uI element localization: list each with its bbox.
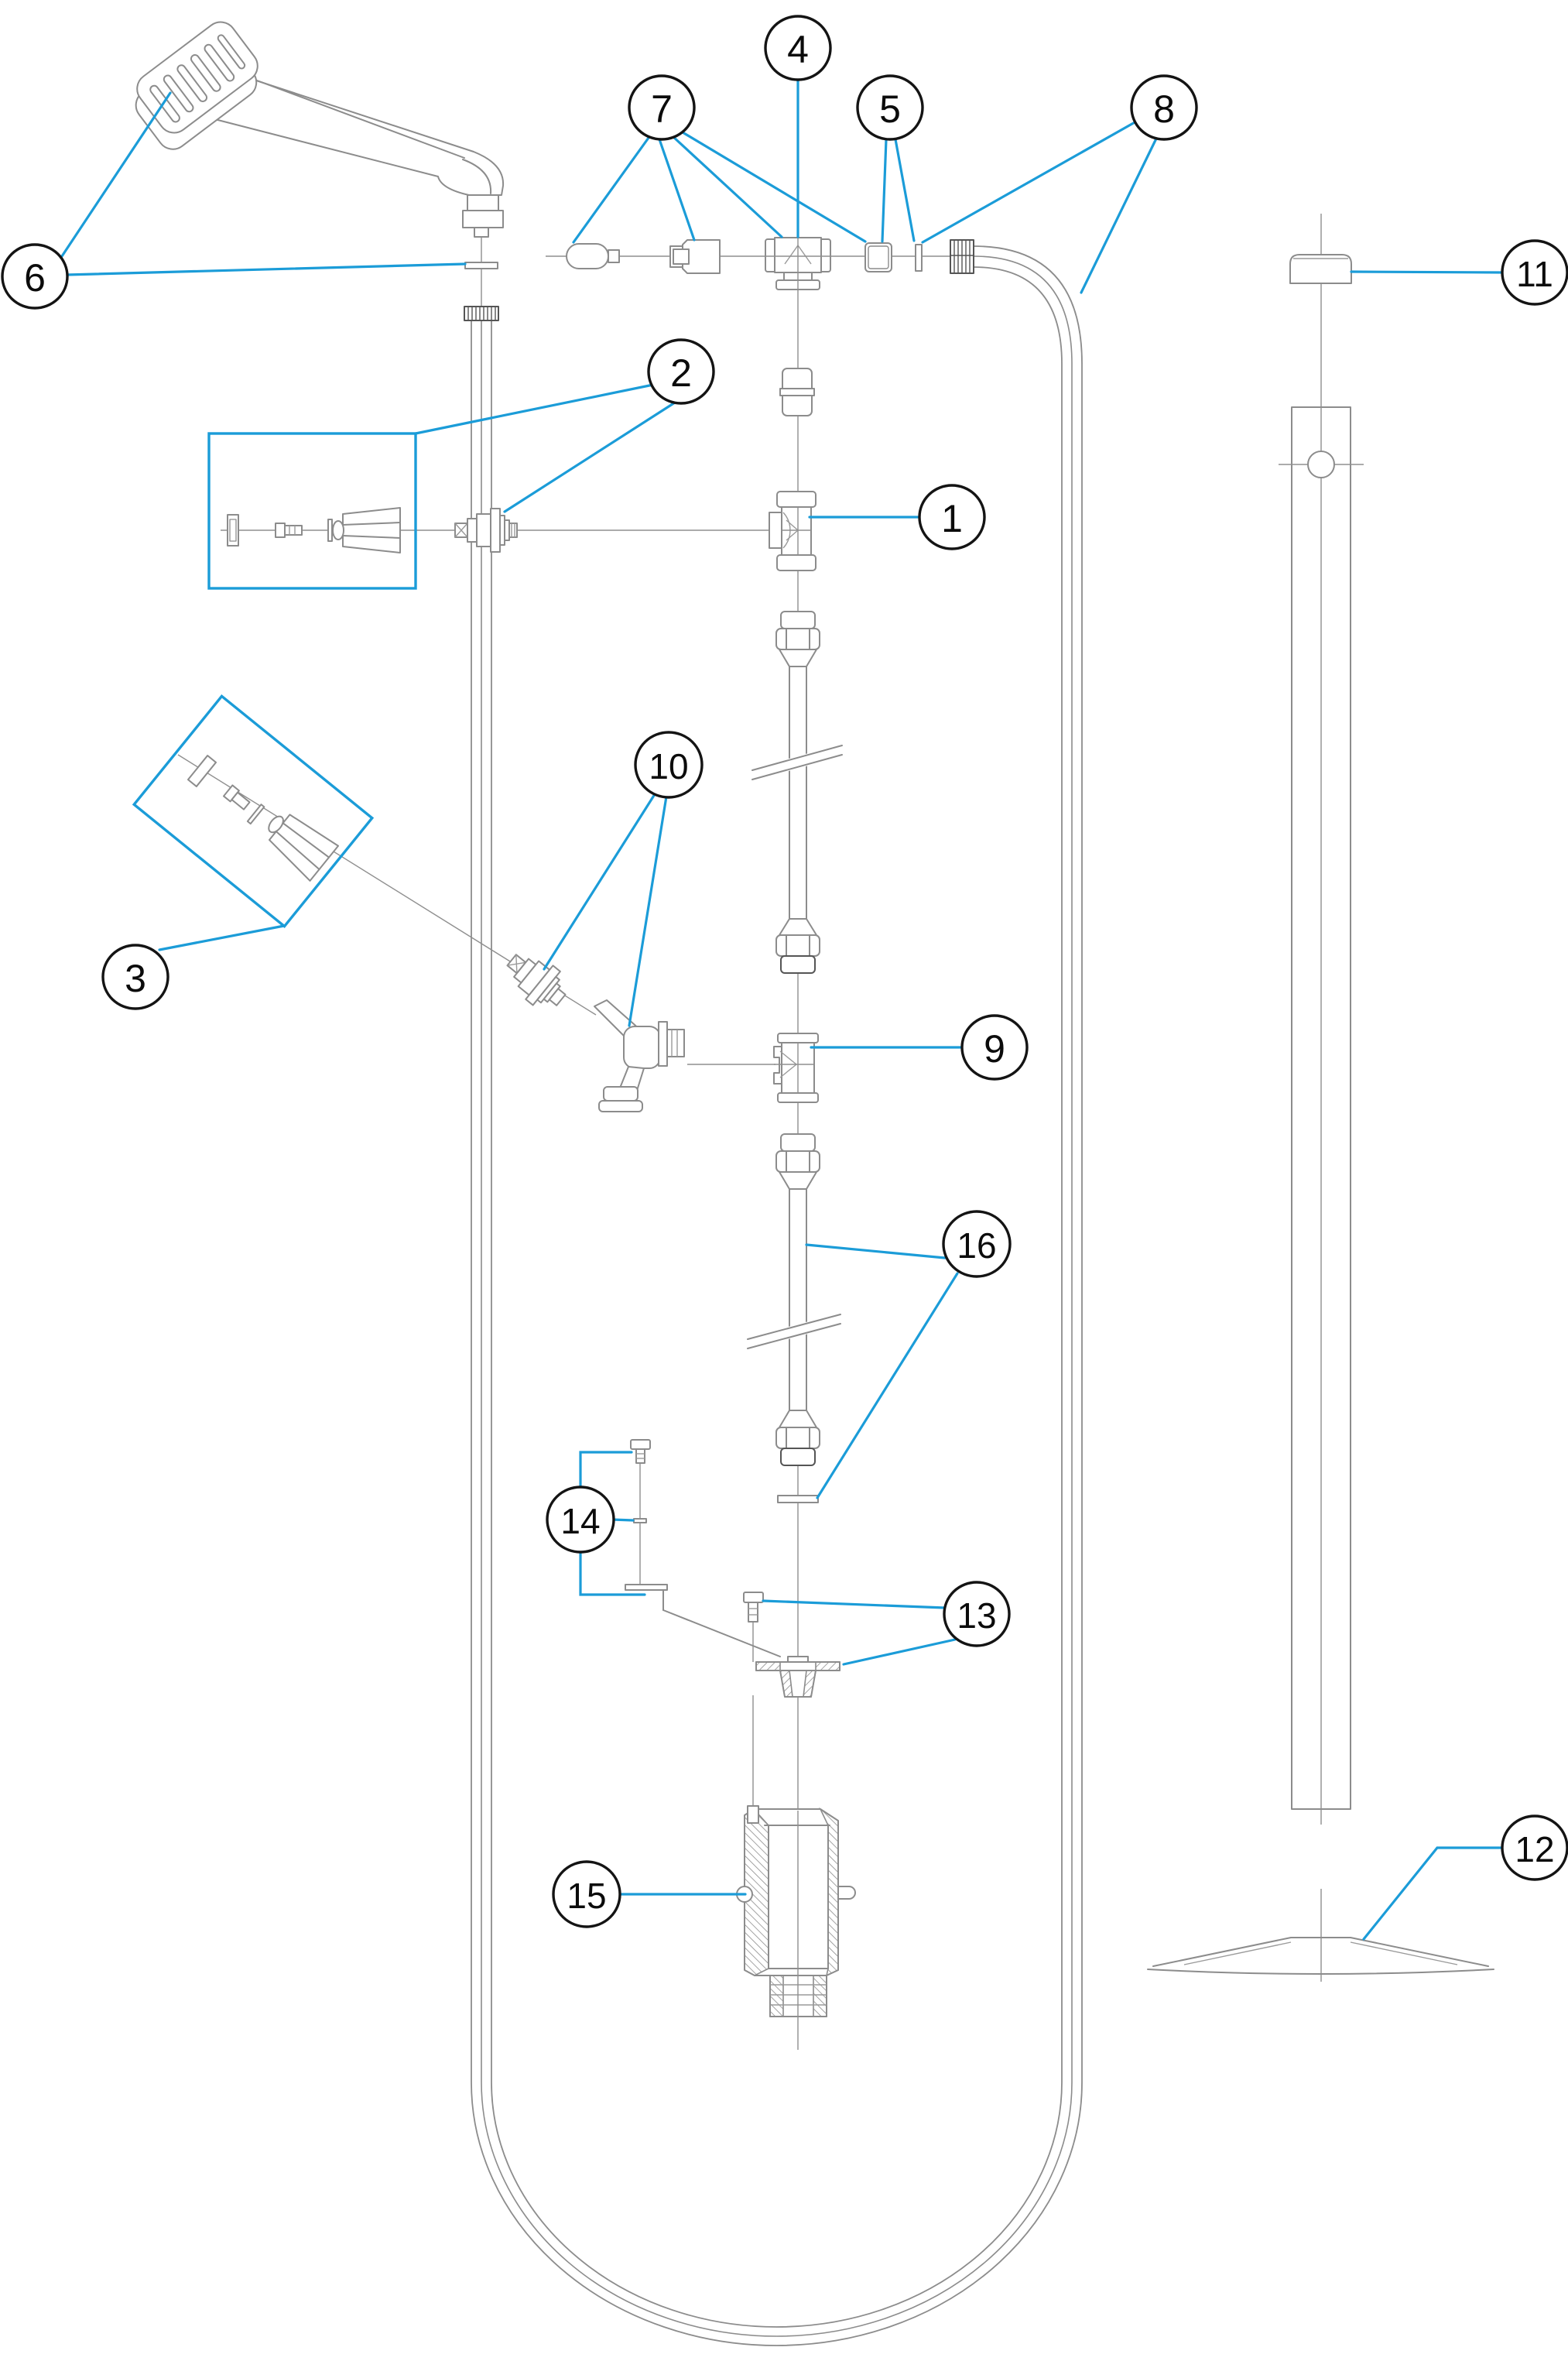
- leader-5-square-nut: [882, 139, 886, 242]
- tee-fitting-mid: [774, 1033, 818, 1102]
- centerlines: [178, 214, 1321, 1982]
- plug-fitting: [567, 244, 619, 269]
- callout-12: 12: [1502, 1816, 1567, 1880]
- shower-neck: [474, 228, 488, 237]
- leader-8-gasket: [923, 122, 1136, 242]
- detail-box-3: [134, 696, 372, 926]
- leader-2-cartridge: [505, 403, 675, 512]
- callout-14-label: 14: [560, 1501, 600, 1541]
- knob-pin: [328, 519, 332, 541]
- clip-screw-14: [625, 1440, 780, 1657]
- callout-7: 7: [629, 76, 694, 139]
- leader-13-screw: [763, 1601, 945, 1608]
- callout-3: 3: [103, 945, 168, 1009]
- hand-shower-face: [122, 16, 271, 156]
- shower-elbow-ring-2: [463, 211, 503, 228]
- leader-14-screw: [580, 1452, 632, 1488]
- callout-15: 15: [553, 1862, 620, 1927]
- leader-10-tap-tee: [629, 797, 666, 1026]
- riser-pipe-lower: [748, 1134, 840, 1503]
- callout-14: 14: [547, 1487, 614, 1552]
- leader-10-cartridge: [544, 794, 655, 969]
- leader-16-pipe: [806, 1245, 945, 1258]
- callout-9: 9: [962, 1016, 1027, 1079]
- anchor-sleeve-15: [737, 1806, 855, 2050]
- callout-1: 1: [919, 485, 984, 549]
- hose-washer-top: [465, 262, 498, 269]
- pipe-gasket: [778, 1496, 818, 1503]
- callout-5: 5: [858, 76, 923, 139]
- leader-3-box: [159, 926, 284, 950]
- leader-lines: [60, 80, 1502, 1939]
- shower-parts-diagram: 1 2 3 4 5 6 7 8: [0, 0, 1568, 2361]
- callout-6: 6: [2, 245, 67, 308]
- diagram-page: 1 2 3 4 5 6 7 8: [0, 0, 1568, 2361]
- clip-washer-14: [634, 1519, 646, 1523]
- callout-10-label: 10: [649, 746, 688, 786]
- leader-2-box: [416, 385, 653, 433]
- callout-6-label: 6: [24, 256, 46, 300]
- square-union-nut: [865, 243, 892, 272]
- clamp-screw-13: [744, 1592, 763, 1622]
- leader-5-gasket: [895, 139, 914, 241]
- hand-shower: [122, 16, 503, 320]
- callout-16: 16: [943, 1211, 1010, 1276]
- angle-valve-body-1: [769, 492, 816, 571]
- callout-16-label: 16: [957, 1225, 996, 1266]
- riser-pipe-upper: [752, 612, 842, 973]
- callout-1-label: 1: [941, 497, 963, 540]
- leader-6-showerhead: [60, 93, 170, 259]
- callout-2: 2: [649, 340, 714, 403]
- leader-7-nut: [659, 139, 694, 240]
- column-cap-11: [1290, 255, 1351, 283]
- knob-screw: [276, 523, 302, 537]
- callout-5-label: 5: [879, 87, 901, 131]
- valve-cartridge-10: [498, 943, 575, 1016]
- leader-7-square-nut: [679, 130, 865, 242]
- leader-8-hose: [1081, 139, 1156, 293]
- leader-13-flange: [844, 1640, 955, 1664]
- leader-14-washer: [612, 1520, 633, 1520]
- pole-mounting-hole: [1308, 451, 1334, 478]
- callout-4: 4: [765, 16, 830, 80]
- callout-2-label: 2: [670, 351, 692, 395]
- leader-12-base: [1364, 1848, 1502, 1939]
- callout-7-label: 7: [651, 87, 673, 131]
- leader-16-gasket: [817, 1273, 957, 1498]
- leader-6-gasket: [67, 264, 465, 275]
- column-pole: [1279, 407, 1364, 1825]
- knob-washer: [228, 515, 238, 546]
- callout-8: 8: [1131, 76, 1197, 139]
- callout-4-label: 4: [787, 28, 809, 71]
- valve-knob-kit-box3: [188, 756, 338, 881]
- callout-10: 10: [635, 732, 702, 797]
- callout-13-label: 13: [957, 1595, 996, 1636]
- top-fitting-row: [567, 238, 974, 290]
- callout-11: 11: [1502, 241, 1567, 304]
- leader-11-cap: [1351, 272, 1502, 272]
- knob-cone: [333, 508, 400, 553]
- callout-3-label: 3: [125, 957, 146, 1000]
- knob-cone-3: [258, 804, 338, 881]
- callout-11-label: 11: [1516, 254, 1553, 294]
- leader-7-plug: [573, 138, 649, 242]
- callout-15-label: 15: [567, 1876, 606, 1916]
- hatched-union-nut: [670, 240, 720, 273]
- clamp-flange-13: [756, 1657, 840, 1697]
- callout-13: 13: [944, 1582, 1009, 1646]
- hose-knurled-nut-right: [950, 240, 974, 273]
- shower-elbow-ring-1: [467, 195, 498, 211]
- anchor-side-tab: [838, 1886, 855, 1899]
- callout-8-label: 8: [1153, 87, 1175, 131]
- tee-fitting-top: [765, 238, 830, 290]
- detail-boxes: [134, 433, 416, 927]
- callout-12-label: 12: [1515, 1829, 1554, 1869]
- flat-gasket: [916, 245, 922, 271]
- tap-tee-body-10: [594, 1000, 684, 1112]
- adapter-nipple: [780, 368, 814, 416]
- valve-cartridge-2: [455, 509, 517, 552]
- hose-knurled-nut-left: [464, 307, 498, 320]
- callout-9-label: 9: [984, 1027, 1005, 1071]
